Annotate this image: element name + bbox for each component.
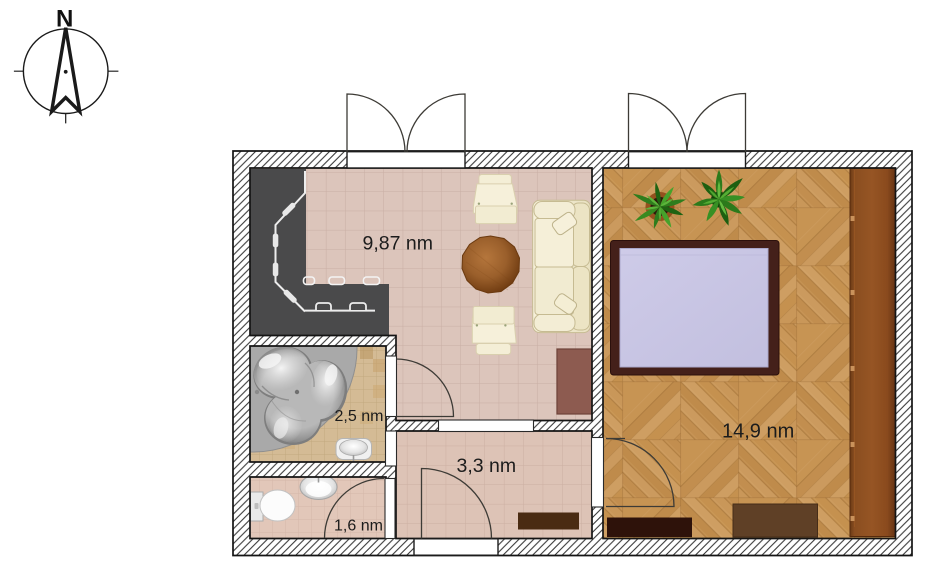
svg-text:2,5 nm: 2,5 nm: [335, 408, 384, 425]
svg-text:N: N: [56, 6, 73, 33]
svg-text:3,3 nm: 3,3 nm: [457, 455, 517, 477]
svg-text:1,6 nm: 1,6 nm: [334, 518, 383, 535]
svg-text:14,9 nm: 14,9 nm: [722, 421, 794, 443]
svg-text:9,87 nm: 9,87 nm: [363, 233, 433, 255]
